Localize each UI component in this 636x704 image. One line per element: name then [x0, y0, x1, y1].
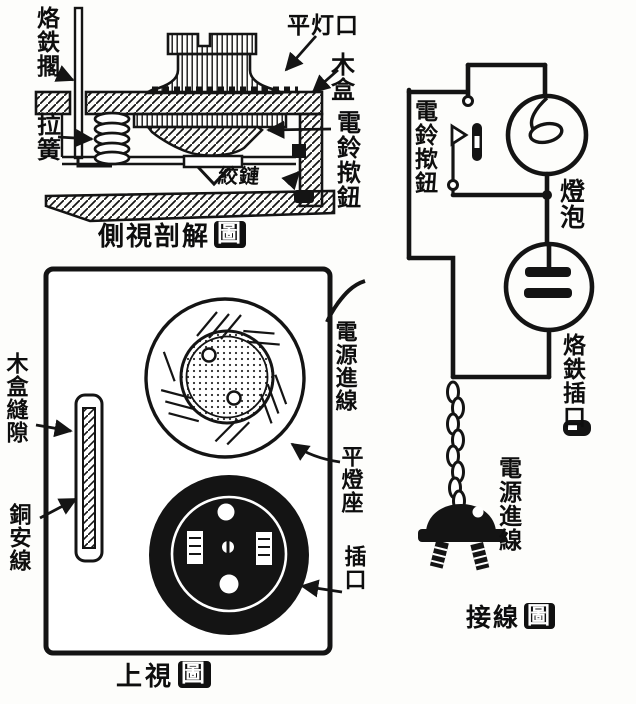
flat-lamp-socket-shape	[146, 34, 298, 93]
caption-side-view: 側視剖解 圖	[98, 216, 246, 253]
caption-side-view-text: 側視剖解	[98, 216, 210, 253]
label-pull-spring: 拉簧	[33, 112, 57, 162]
power-inlet-wire	[327, 281, 365, 322]
label-copper-strip: 銅安線	[7, 503, 29, 572]
bulb-symbol	[508, 96, 586, 174]
label-bell-button-wiring: 電鈴揿鈕	[412, 99, 435, 195]
label-socket: 插口	[342, 545, 364, 591]
label-bell-button-side: 電鈴揿鈕	[333, 110, 357, 210]
caption-side-view-badge: 圖	[214, 221, 246, 248]
power-plug-symbol	[418, 504, 506, 570]
arrow-iron-rest	[57, 73, 73, 80]
inner-lamp-holder-section	[134, 114, 286, 184]
caption-wiring-text: 接線	[466, 598, 520, 634]
junction-dot	[542, 190, 552, 200]
lamp-holder-circle	[146, 299, 304, 457]
label-flat-lamp-socket: 平灯口	[287, 14, 359, 37]
bell-button-switch-symbol	[449, 97, 483, 196]
label-lamp-holder: 平燈座	[339, 445, 361, 514]
label-box-slit: 木盒縫隙	[4, 352, 26, 444]
scanned-technical-illustration: 烙鉄擱 拉簧 平灯口 木盒 電鈴揿鈕 絞鏈 側視剖解 圖	[0, 0, 636, 704]
label-wood-box: 木盒	[327, 52, 351, 102]
pull-spring-coil	[95, 113, 129, 164]
caption-wiring-badge: 圖	[524, 603, 555, 629]
socket-circle	[149, 475, 309, 635]
label-power-cord: 電源進線	[496, 456, 519, 552]
arrow-hinge	[288, 172, 299, 184]
label-hinge: 絞鏈	[217, 167, 261, 187]
arrow-pull-spring	[58, 137, 92, 139]
bell-button-component	[292, 144, 306, 158]
label-power-inlet-top: 電源進線	[333, 320, 355, 412]
label-iron-socket: 烙鉄插口	[560, 333, 583, 429]
label-iron-rest: 烙鉄擱	[34, 6, 57, 78]
arrow-lamp-socket	[286, 36, 316, 70]
iron-socket-symbol	[506, 244, 592, 330]
caption-top-view-text: 上視	[116, 656, 174, 693]
twisted-cord	[448, 382, 465, 511]
caption-top-view: 上視 圖	[116, 656, 211, 693]
box-slit-shape	[76, 395, 102, 561]
caption-wiring: 接線 圖	[466, 598, 555, 634]
caption-top-view-badge: 圖	[178, 661, 211, 688]
arrow-bell-button	[268, 129, 331, 130]
label-bulb: 燈泡	[557, 178, 583, 230]
